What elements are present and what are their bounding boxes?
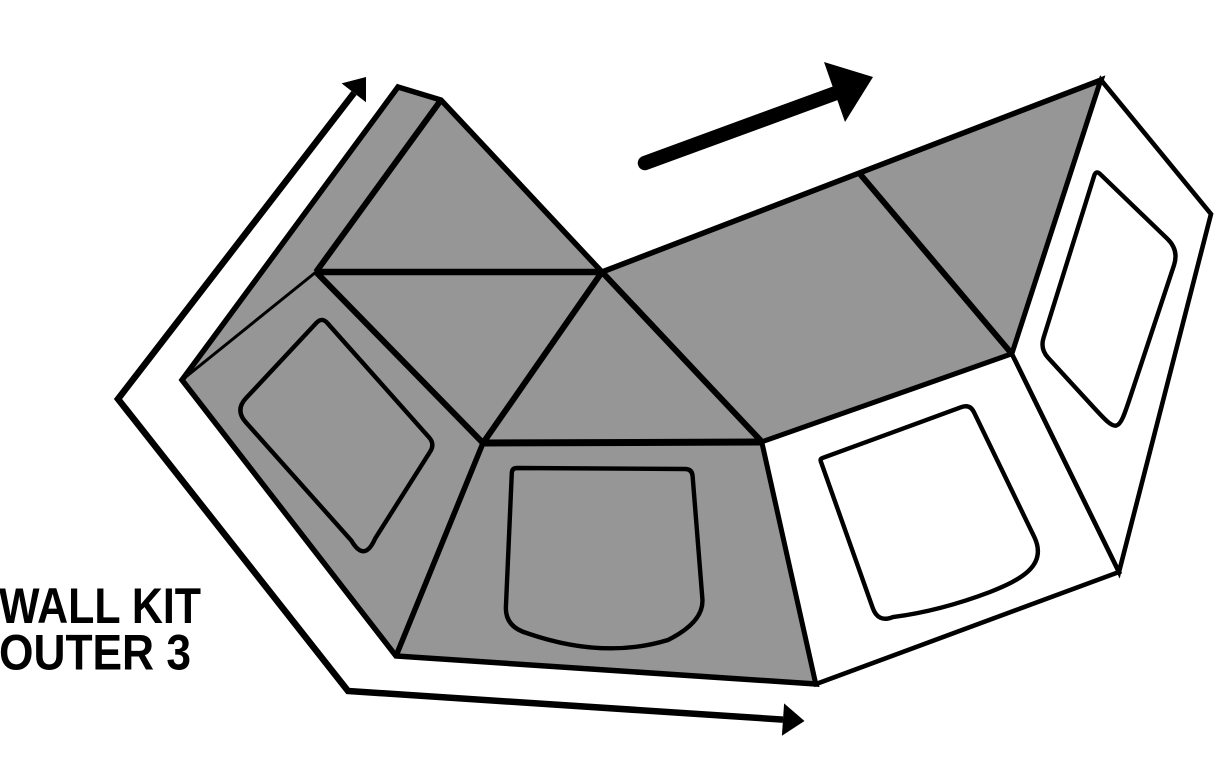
- svg-text:OUTER 3: OUTER 3: [0, 625, 191, 681]
